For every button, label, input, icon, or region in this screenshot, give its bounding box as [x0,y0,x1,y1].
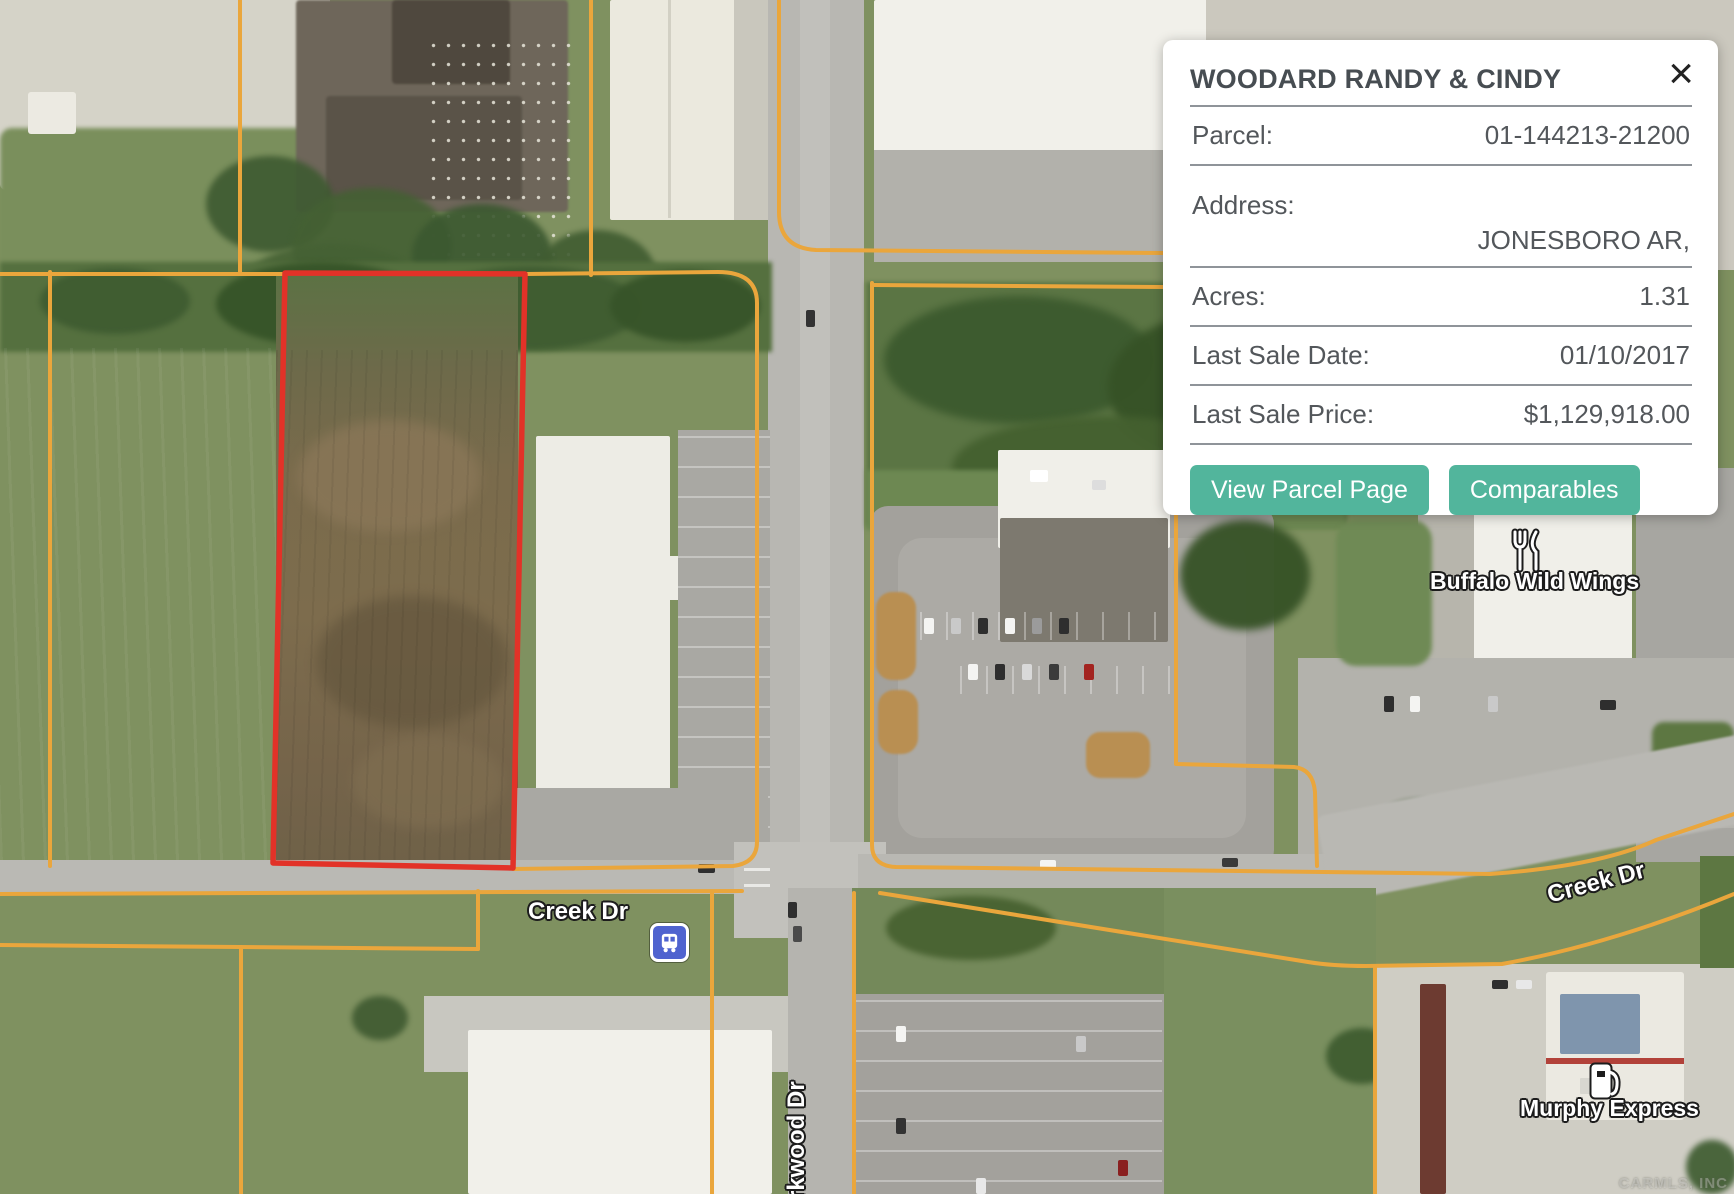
last-sale-price-value: $1,129,918.00 [1524,399,1690,430]
last-sale-price-label: Last Sale Price: [1192,399,1374,430]
last-sale-price-row: Last Sale Price: $1,129,918.00 [1190,386,1692,445]
comparables-button[interactable]: Comparables [1449,465,1640,515]
popup-title: WOODARD RANDY & CINDY [1190,64,1692,95]
parcel-line [880,893,1734,966]
last-sale-date-label: Last Sale Date: [1192,340,1370,371]
acres-value: 1.31 [1639,281,1690,312]
parcel-label: Parcel: [1192,120,1273,151]
street-label-creek-dr-west: Creek Dr [528,898,628,926]
parcel-row: Parcel: 01-144213-21200 [1190,107,1692,166]
parcel-line [874,285,1163,287]
map-watermark: CARMLS, INC [1619,1175,1728,1192]
restaurant-icon [1506,528,1548,579]
last-sale-date-value: 01/10/2017 [1560,340,1690,371]
close-icon[interactable]: × [1662,56,1700,92]
parcel-line [1176,467,1317,866]
address-row: Address: JONESBORO AR, [1190,190,1692,268]
parcel-line [513,272,757,869]
parcel-value: 01-144213-21200 [1485,120,1690,151]
street-label-parkwood-dr: rkwood Dr [783,1081,811,1194]
gas-station-icon [1586,1058,1628,1107]
address-value: JONESBORO AR, [1192,225,1690,256]
parcel-line [779,0,1163,253]
view-parcel-page-button[interactable]: View Parcel Page [1190,465,1429,515]
map-viewport: Creek Dr Creek Dr rkwood Dr Buffalo Wild… [0,0,1734,1194]
selected-parcel-outline[interactable] [273,273,525,868]
parcel-line [0,891,742,894]
bus-stop-icon [650,923,689,962]
address-label: Address: [1192,190,1690,221]
acres-row: Acres: 1.31 [1190,268,1692,327]
acres-label: Acres: [1192,281,1266,312]
last-sale-date-row: Last Sale Date: 01/10/2017 [1190,327,1692,386]
parcel-info-popup: WOODARD RANDY & CINDY × Parcel: 01-14421… [1163,40,1718,515]
